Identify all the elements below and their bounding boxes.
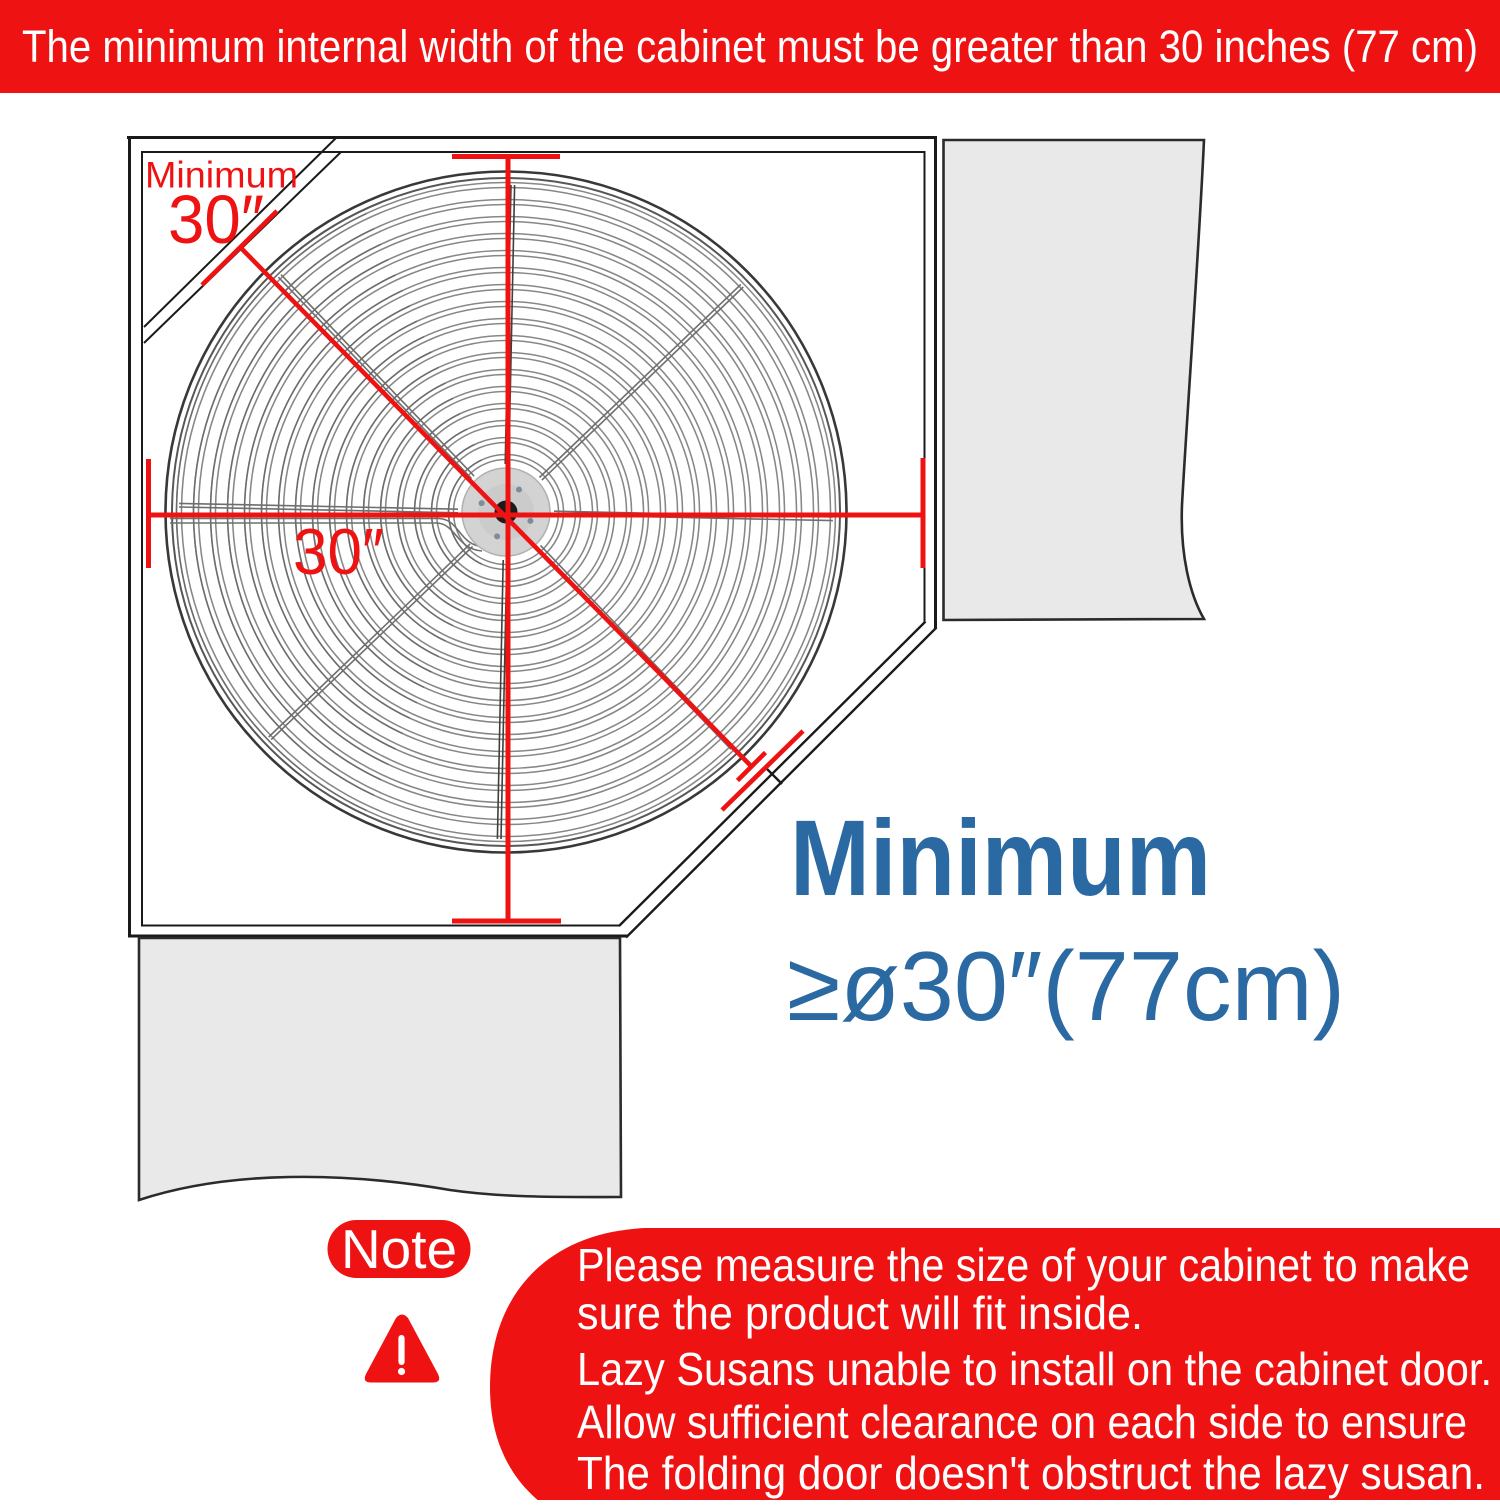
svg-text:Lazy Susans unable to install: Lazy Susans unable to install on the cab… (577, 1343, 1492, 1395)
svg-text:Allow sufficient clearance on: Allow sufficient clearance on each side … (577, 1396, 1467, 1448)
svg-text:Note: Note (341, 1218, 457, 1280)
svg-text:30″: 30″ (293, 515, 384, 588)
svg-text:sure the product will fit insi: sure the product will fit inside. (577, 1287, 1143, 1339)
svg-text:Please measure the size of you: Please measure the size of your cabinet … (577, 1239, 1470, 1291)
svg-text:≥ø30″(77cm): ≥ø30″(77cm) (787, 931, 1345, 1041)
svg-text:The minimum internal width of: The minimum internal width of the cabine… (22, 21, 1478, 72)
svg-text:The folding door doesn't obstr: The folding door doesn't obstruct the la… (577, 1447, 1485, 1499)
svg-text:30″: 30″ (168, 181, 264, 258)
svg-text:Minimum: Minimum (790, 797, 1211, 918)
